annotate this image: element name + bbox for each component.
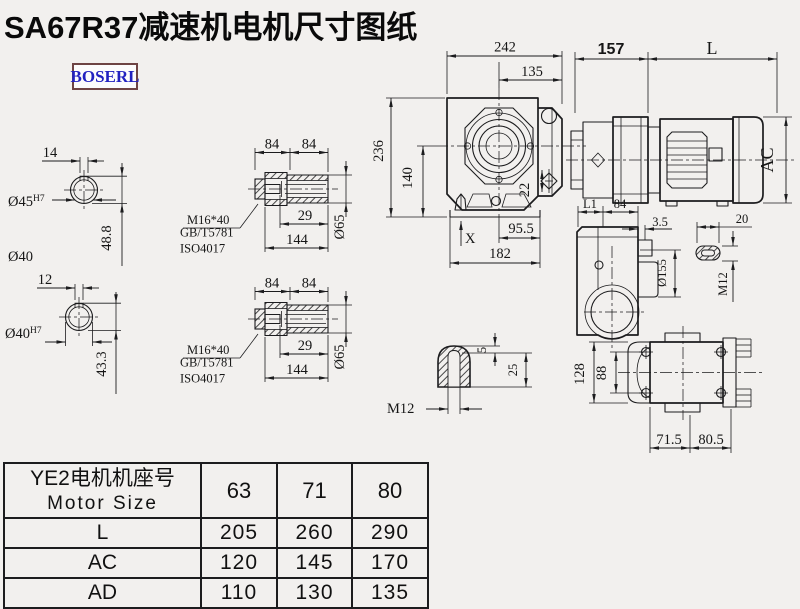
gearbox-side-view: L1 84 3.5 Ø155 20 M12 bbox=[577, 197, 752, 348]
cell-AC-71: 145 bbox=[277, 548, 352, 578]
dim-side-l1: L1 bbox=[583, 197, 597, 211]
header-en: Motor Size bbox=[5, 492, 200, 516]
sleeve-section-2: 84 84 Ø65 29 144 M16*40 GB/T5781 ISO4017 bbox=[180, 276, 352, 386]
dim-sleeve2-dia: Ø65 bbox=[332, 345, 348, 370]
dim-sleeve1-depth: 29 bbox=[298, 208, 313, 224]
dim-sleeve1-length: 144 bbox=[286, 232, 309, 248]
breather-hole bbox=[542, 109, 557, 124]
dim-motor-gear-length: 157 bbox=[598, 41, 625, 58]
dim-front-height-center: 140 bbox=[400, 167, 416, 189]
dim-sleeve1-len-a: 84 bbox=[265, 137, 280, 153]
gearbox-front-view: 242 135 236 140 22 95.5 182 X bbox=[371, 40, 586, 269]
dim-front-plug: 22 bbox=[517, 183, 533, 198]
row-label-L: L bbox=[4, 518, 201, 548]
key-tapped-hole bbox=[448, 351, 460, 388]
label-sleeve2-standard2: ISO4017 bbox=[180, 372, 225, 386]
table-row-AC: AC 120 145 170 bbox=[4, 548, 428, 578]
table-header-row: YE2电机机座号 Motor Size 63 71 80 bbox=[4, 463, 428, 518]
size-63: 63 bbox=[201, 463, 277, 518]
label-front-marker: X bbox=[465, 231, 476, 247]
dim-shaft1-outer: Ø40 bbox=[8, 249, 33, 265]
dim-sleeve1-dia: Ø65 bbox=[332, 215, 348, 240]
size-71: 71 bbox=[277, 463, 352, 518]
shaft-end-view-1: 14 Ø45H7 48.8 Ø40 bbox=[8, 145, 127, 266]
dim-shaft1-keyway-width: 14 bbox=[43, 145, 58, 161]
dim-sleeve2-length: 144 bbox=[286, 362, 309, 378]
dim-key-thread: M12 bbox=[387, 401, 414, 417]
bore-value: Ø45 bbox=[8, 194, 33, 210]
dim-front-height: 236 bbox=[371, 140, 387, 162]
dim-motor-dia: AC bbox=[757, 147, 777, 172]
cell-L-80: 290 bbox=[352, 518, 428, 548]
gearbox-base bbox=[450, 210, 540, 217]
dim-sleeve2-depth: 29 bbox=[298, 338, 313, 354]
shaft-key-detail: 5 25 M12 bbox=[387, 333, 532, 417]
dim-shaft2-height: 43.3 bbox=[94, 351, 110, 376]
gearbox-bottom-view: 128 88 71.5 80.5 bbox=[572, 326, 762, 453]
cell-AD-80: 135 bbox=[352, 578, 428, 608]
dim-shaft2-bore: Ø40H7 bbox=[5, 326, 42, 342]
dim-side-thread: M12 bbox=[716, 272, 730, 296]
sleeve-section-1: 84 84 Ø65 29 144 M16*40 GB/T5781 ISO4017 bbox=[180, 137, 352, 256]
dim-motor-length: L bbox=[707, 38, 718, 58]
bore-fit: H7 bbox=[33, 194, 45, 204]
dim-sleeve1-len-b: 84 bbox=[302, 137, 317, 153]
cell-L-63: 205 bbox=[201, 518, 277, 548]
cell-AC-80: 170 bbox=[352, 548, 428, 578]
dim-bottom-bolt-span: 88 bbox=[594, 366, 610, 381]
size-80: 80 bbox=[352, 463, 428, 518]
dim-front-base-a: 95.5 bbox=[508, 221, 533, 237]
torque-lug bbox=[638, 240, 652, 256]
dim-sleeve2-len-b: 84 bbox=[302, 276, 317, 292]
row-label-AD: AD bbox=[4, 578, 201, 608]
motor-size-table: YE2电机机座号 Motor Size 63 71 80 L 205 260 2… bbox=[3, 462, 429, 609]
dim-side-slot-width: 20 bbox=[736, 212, 749, 226]
cell-AD-71: 130 bbox=[277, 578, 352, 608]
cell-AD-63: 110 bbox=[201, 578, 277, 608]
motor-side-view: 157 L AC bbox=[566, 38, 795, 206]
cell-L-71: 260 bbox=[277, 518, 352, 548]
table-row-L: L 205 260 290 bbox=[4, 518, 428, 548]
dim-bottom-base-a: 71.5 bbox=[656, 432, 681, 448]
header-cn: YE2电机机座号 bbox=[5, 466, 200, 492]
dim-side-84: 84 bbox=[614, 197, 627, 211]
dim-side-flange-dia: Ø155 bbox=[655, 259, 669, 287]
cell-AC-63: 120 bbox=[201, 548, 277, 578]
dim-front-base-b: 182 bbox=[489, 246, 511, 262]
dim-front-width-center: 135 bbox=[521, 64, 543, 80]
label-sleeve1-standard2: ISO4017 bbox=[180, 242, 225, 256]
dim-side-lip: 3.5 bbox=[652, 215, 668, 229]
dim-sleeve2-len-a: 84 bbox=[265, 276, 280, 292]
drawing-page: SA67R37减速机电机尺寸图纸 BOSERL 14 Ø45H7 bbox=[0, 0, 800, 609]
dim-bottom-width: 128 bbox=[572, 363, 588, 385]
dim-shaft2-keyway-width: 12 bbox=[38, 272, 53, 288]
dim-shaft1-bore: Ø45H7 bbox=[8, 194, 45, 210]
header-motor-size: YE2电机机座号 Motor Size bbox=[4, 463, 201, 518]
dim-bottom-base-b: 80.5 bbox=[698, 432, 723, 448]
shaft-end-view-2: 12 Ø40H7 43.3 bbox=[5, 272, 121, 394]
table-row-AD: AD 110 130 135 bbox=[4, 578, 428, 608]
dim-front-width: 242 bbox=[494, 40, 516, 56]
bore-fit: H7 bbox=[30, 326, 42, 336]
dim-key-depth: 5 bbox=[475, 347, 489, 353]
side-body bbox=[577, 227, 638, 339]
row-label-AC: AC bbox=[4, 548, 201, 578]
dim-key-height: 25 bbox=[506, 364, 520, 377]
bore-value: Ø40 bbox=[5, 326, 30, 342]
dim-shaft1-height: 48.8 bbox=[99, 225, 115, 250]
